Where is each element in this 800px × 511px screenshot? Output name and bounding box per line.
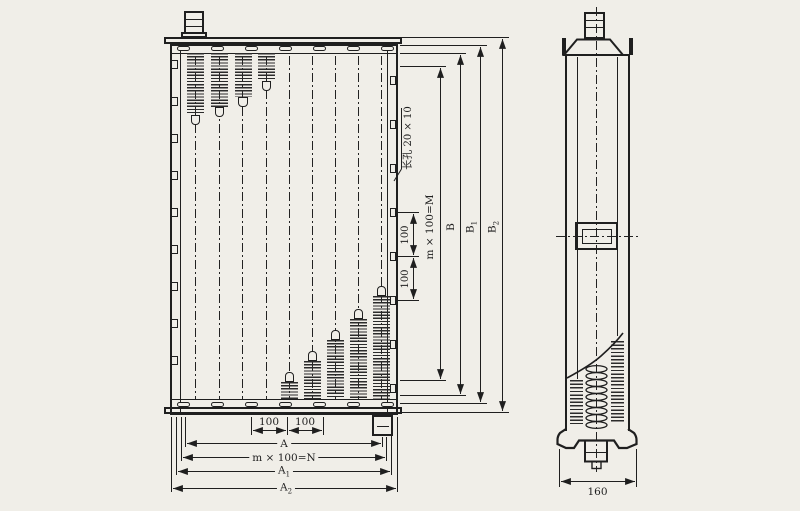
dim-label-a1: A1 — [275, 465, 293, 478]
side-break-line — [567, 333, 623, 378]
side-bottom-plug — [592, 462, 601, 469]
dim-label-b1: B1 — [465, 221, 478, 233]
dim-label-a: A — [277, 438, 291, 449]
dim-label-pitch-right-1: 100 — [401, 225, 411, 244]
dimension-linework — [0, 0, 800, 511]
dim-label-pitch-right-2: 100 — [401, 269, 411, 288]
side-bottom-nozzle — [585, 441, 607, 462]
dim-label-pitch-bottom-1: 100 — [259, 417, 279, 428]
dim-label-b2: B2 — [487, 221, 500, 233]
dim-label-depth-160: 160 — [587, 487, 607, 498]
side-bottom-closure — [558, 429, 637, 448]
heat-exchanger-drawing: 长孔 20 × 10 m × 100=M B B1 B2 100 100 100… — [0, 0, 800, 511]
dim-label-a2: A2 — [277, 482, 295, 495]
dim-label-b: B — [446, 223, 457, 231]
dim-label-col-module: m × 100=M — [425, 194, 436, 259]
dim-label-row-module: m × 100=N — [249, 452, 318, 463]
dim-label-pitch-bottom-2: 100 — [295, 417, 315, 428]
side-coil-section — [586, 366, 607, 429]
slot-callout-label: 长孔 20 × 10 — [404, 106, 414, 169]
side-top-transition — [564, 40, 623, 56]
